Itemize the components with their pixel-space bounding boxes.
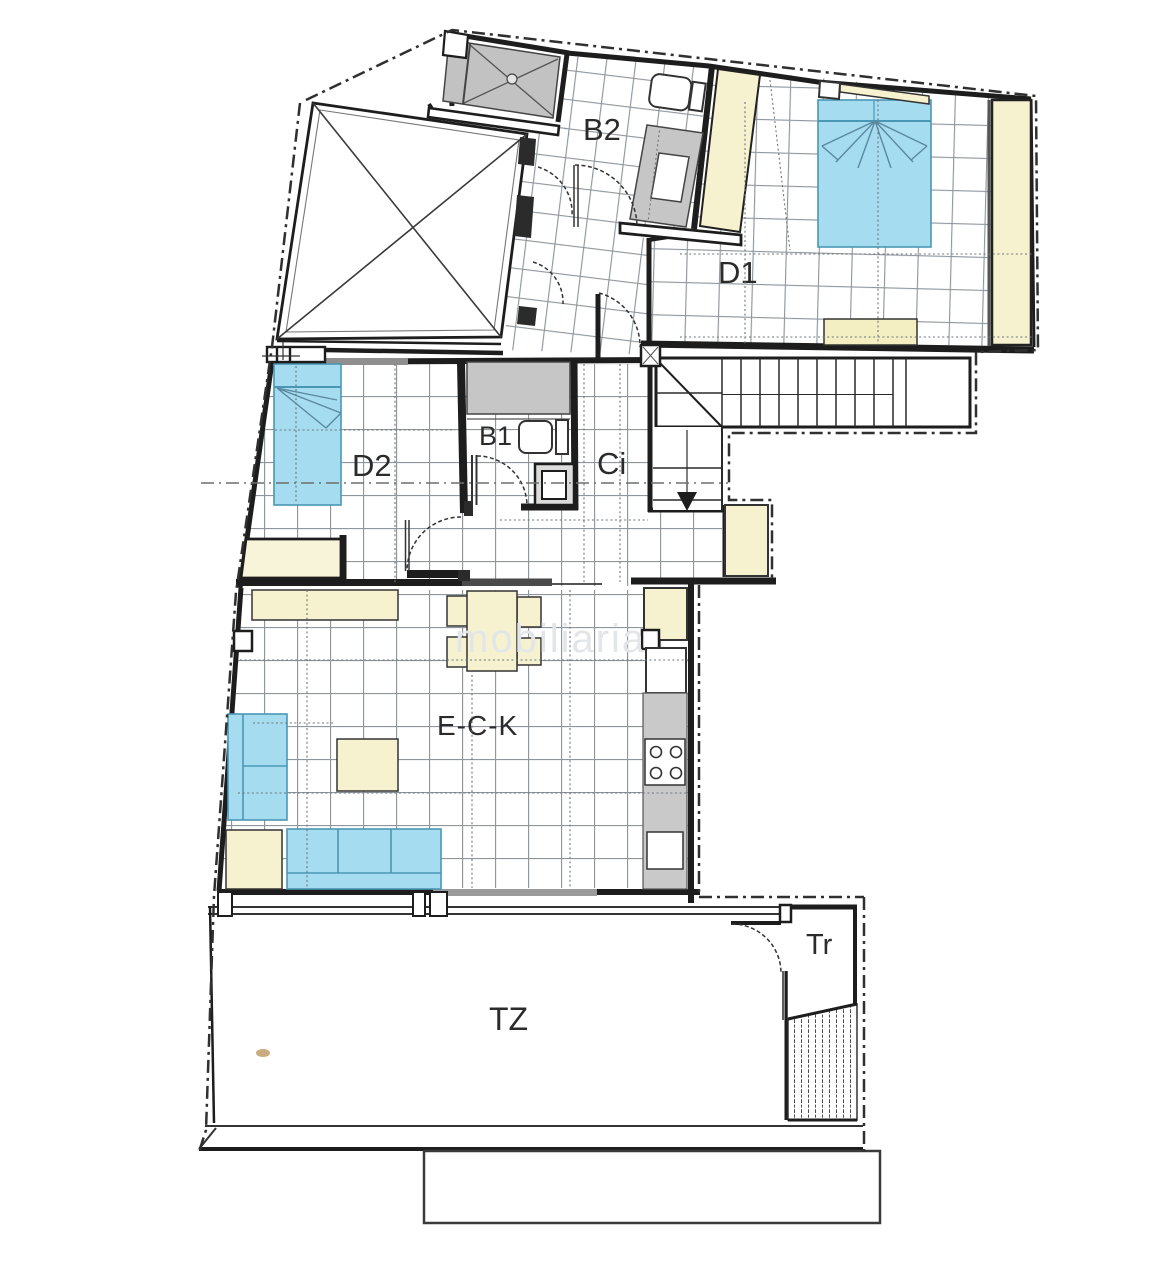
svg-text:Tr: Tr — [806, 929, 833, 961]
svg-text:D2: D2 — [352, 448, 392, 483]
svg-text:B2: B2 — [583, 112, 621, 147]
svg-text:E-C-K: E-C-K — [437, 710, 518, 741]
svg-text:D1: D1 — [718, 255, 758, 290]
svg-text:B1: B1 — [479, 421, 512, 451]
svg-text:TZ: TZ — [489, 1001, 528, 1037]
svg-text:mobiliaria: mobiliaria — [455, 617, 646, 661]
svg-text:Ci: Ci — [597, 446, 626, 481]
